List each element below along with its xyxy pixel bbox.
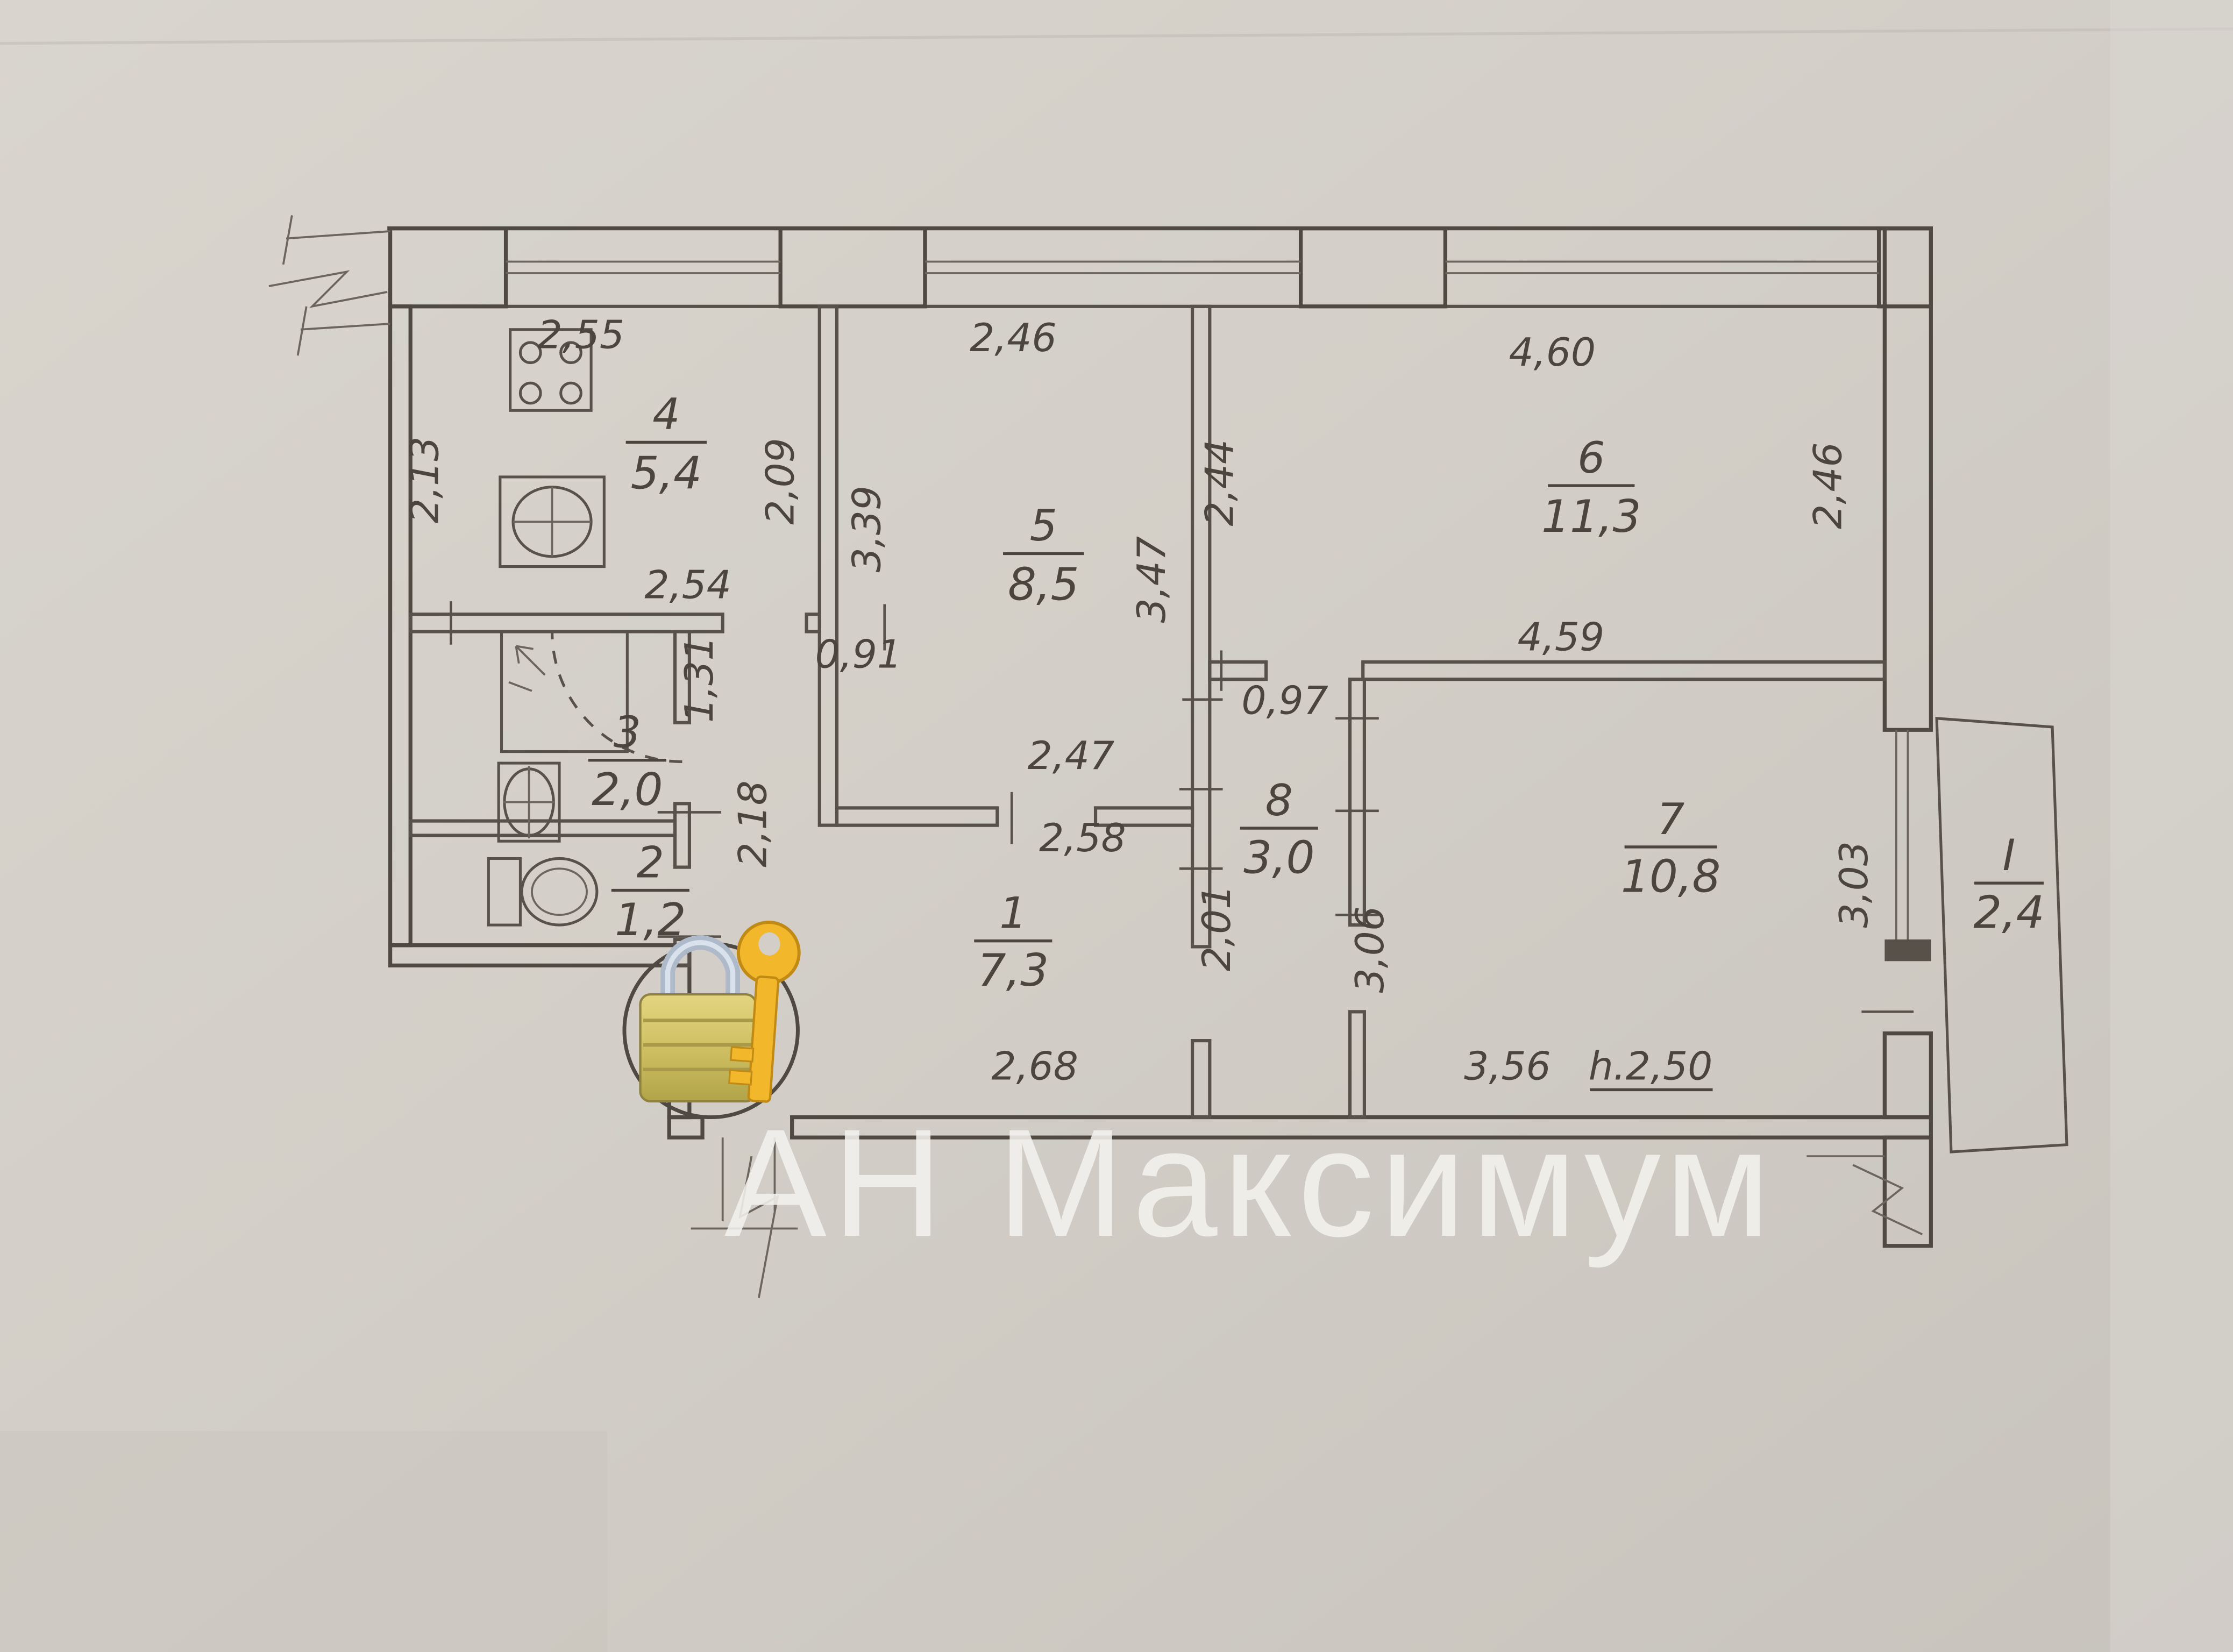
- floor-plan-photo: 2,55 2,13 2,54 2,09 2,46 3,39 3,47 2,44 …: [0, 0, 2233, 1652]
- room-number: 8: [1265, 775, 1293, 826]
- room-area: 10,8: [1621, 850, 1720, 902]
- room-number: 1: [999, 888, 1027, 938]
- paper-shadow: [0, 1431, 607, 1652]
- paper-edge-light: [2110, 0, 2233, 1652]
- dim-room6-left: 2,44: [1197, 439, 1242, 526]
- dim-corridor-width: 0,91: [815, 632, 902, 678]
- room-number: I: [2003, 830, 2016, 881]
- room-area: 5,4: [631, 447, 702, 499]
- dim-room5-left: 3,39: [845, 486, 890, 573]
- room-area: 8,5: [1008, 558, 1079, 610]
- dim-hall-top-upper: 2,47: [1028, 734, 1115, 779]
- dim-hall-top-lower: 2,58: [1039, 816, 1126, 861]
- dim-kitchen-right: 2,09: [758, 438, 803, 525]
- dim-room6-bottom: 4,59: [1518, 615, 1605, 660]
- room-area: 11,3: [1541, 490, 1641, 543]
- dim-room5-right: 3,47: [1129, 536, 1175, 623]
- dim-room7-bottom: 3,56: [1464, 1044, 1551, 1090]
- dim-room5-top: 2,46: [970, 316, 1057, 361]
- room-number: 2: [637, 837, 664, 888]
- room-area: 1,2: [615, 894, 686, 946]
- agency-watermark: АН Максимум: [724, 1098, 1776, 1269]
- dim-room8-right: 3,06: [1348, 906, 1393, 993]
- dim-hall-bottom: 2,68: [991, 1044, 1078, 1090]
- dim-ceiling-height: h.2,50: [1589, 1044, 1713, 1090]
- dim-kitchen-bottom: 2,54: [644, 563, 731, 608]
- dim-room8-top: 0,97: [1241, 679, 1328, 724]
- room-area: 3,0: [1243, 831, 1314, 884]
- dim-balcony-wall: 3,03: [1832, 841, 1877, 928]
- dim-hall-upper-left: 2,18: [730, 780, 776, 867]
- room-number: 6: [1577, 433, 1605, 483]
- dim-room6-right: 2,46: [1806, 442, 1851, 529]
- room-number: 3: [614, 708, 641, 758]
- room-number: 5: [1030, 501, 1057, 551]
- room-number: 7: [1657, 794, 1684, 845]
- dim-bathroom-right: 1,31: [677, 636, 722, 723]
- room-number: 4: [652, 389, 680, 440]
- dim-hall-right: 2,01: [1194, 885, 1240, 972]
- room-area: 2,4: [1973, 886, 2044, 938]
- room-area: 2,0: [592, 764, 663, 816]
- dim-kitchen-left: 2,13: [402, 437, 447, 524]
- room-area: 7,3: [978, 944, 1049, 996]
- dim-room6-top: 4,60: [1509, 330, 1596, 375]
- balcony-door-sill: [1884, 939, 1931, 961]
- dim-kitchen-top: 2,55: [538, 313, 625, 358]
